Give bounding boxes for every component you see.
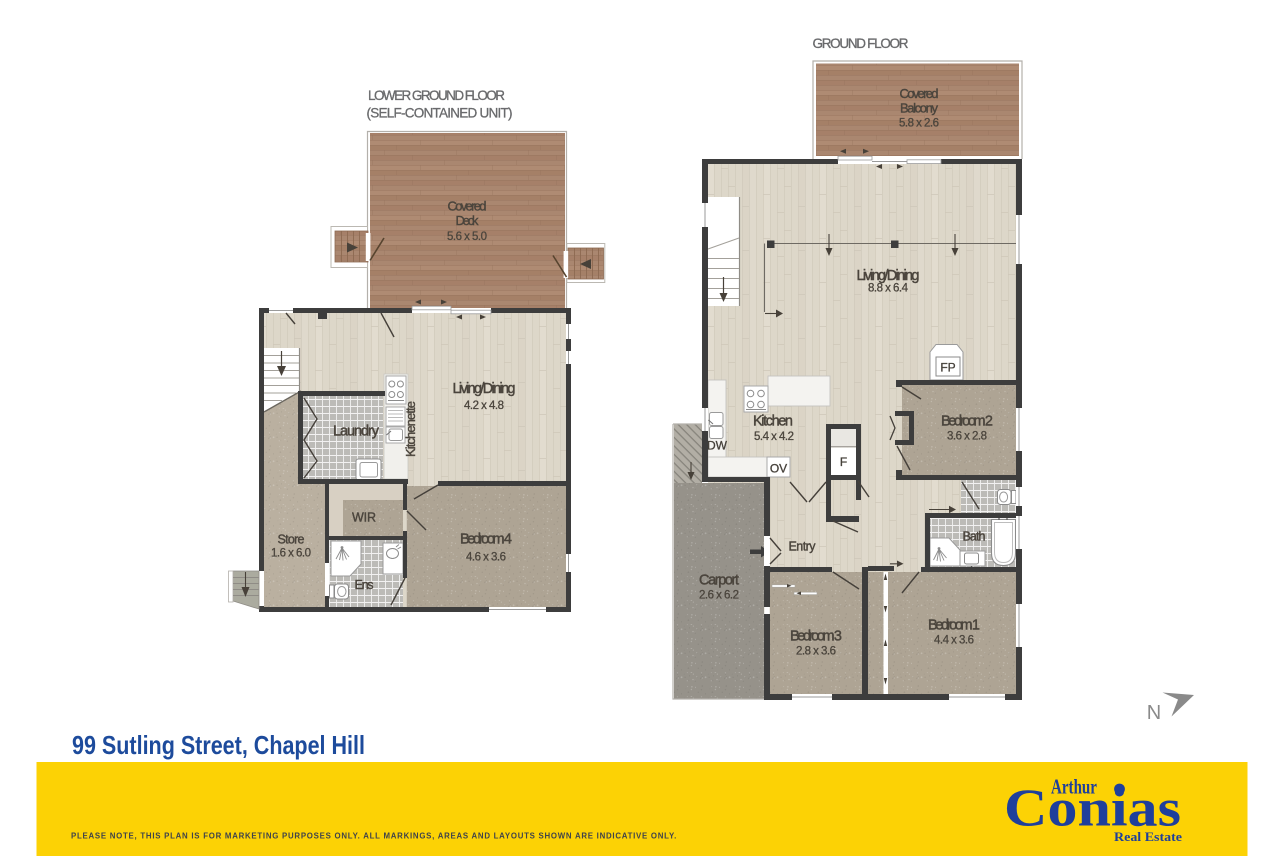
svg-text:GROUND FLOOR: GROUND FLOOR	[813, 36, 910, 51]
svg-text:PLEASE NOTE, THIS PLAN IS FOR: PLEASE NOTE, THIS PLAN IS FOR MARKETING …	[71, 831, 677, 841]
svg-text:Bedroom 4: Bedroom 4	[460, 532, 512, 548]
svg-text:1.6 x 6.0: 1.6 x 6.0	[271, 548, 311, 560]
svg-text:Store: Store	[278, 533, 305, 547]
svg-text:Laundry: Laundry	[333, 424, 380, 440]
svg-text:WIR: WIR	[352, 511, 376, 525]
svg-text:Balcony: Balcony	[900, 101, 939, 116]
svg-text:8.8 x 6.4: 8.8 x 6.4	[868, 283, 909, 295]
svg-text:4.4 x 3.6: 4.4 x 3.6	[934, 635, 974, 647]
svg-text:DW: DW	[707, 439, 728, 453]
svg-text:Bedroom 1: Bedroom 1	[928, 618, 980, 634]
svg-text:Kitchen: Kitchen	[753, 414, 793, 430]
svg-text:3.6 x 2.8: 3.6 x 2.8	[947, 431, 987, 443]
svg-text:2.8 x 3.6: 2.8 x 3.6	[796, 646, 836, 658]
svg-text:Bedroom 2: Bedroom 2	[941, 414, 993, 430]
svg-text:Bedroom 3: Bedroom 3	[790, 629, 842, 645]
svg-text:OV: OV	[770, 462, 787, 476]
svg-text:5.6 x 5.0: 5.6 x 5.0	[447, 231, 487, 243]
svg-text:F: F	[840, 455, 847, 469]
svg-text:Kitchenette: Kitchenette	[403, 401, 418, 457]
svg-text:Deck: Deck	[456, 213, 480, 228]
svg-text:99 Sutling Street, Chapel Hill: 99 Sutling Street, Chapel Hill	[72, 730, 365, 760]
svg-text:FP: FP	[940, 361, 955, 375]
svg-text:Covered: Covered	[448, 199, 487, 214]
svg-text:2.6 x 6.2: 2.6 x 6.2	[699, 590, 739, 602]
svg-text:N: N	[1147, 702, 1161, 724]
svg-text:Bath: Bath	[963, 530, 986, 544]
svg-text:5.8 x 2.6: 5.8 x 2.6	[899, 118, 939, 130]
svg-text:Conias: Conias	[1004, 780, 1181, 838]
svg-text:LOWER GROUND FLOOR: LOWER GROUND FLOOR	[368, 88, 506, 103]
svg-text:5.4 x 4.2: 5.4 x 4.2	[754, 431, 794, 443]
svg-text:Entry: Entry	[789, 540, 817, 554]
svg-text:Covered: Covered	[900, 86, 939, 101]
svg-text:Carport: Carport	[699, 573, 739, 589]
svg-text:4.6 x 3.6: 4.6 x 3.6	[466, 552, 506, 564]
svg-text:Ens: Ens	[355, 578, 374, 592]
svg-text:(SELF-CONTAINED UNIT): (SELF-CONTAINED UNIT)	[367, 106, 514, 121]
svg-text:Living/Dining: Living/Dining	[453, 381, 516, 397]
svg-text:4.2 x 4.8: 4.2 x 4.8	[464, 400, 504, 412]
svg-text:Real Estate: Real Estate	[1114, 830, 1183, 844]
